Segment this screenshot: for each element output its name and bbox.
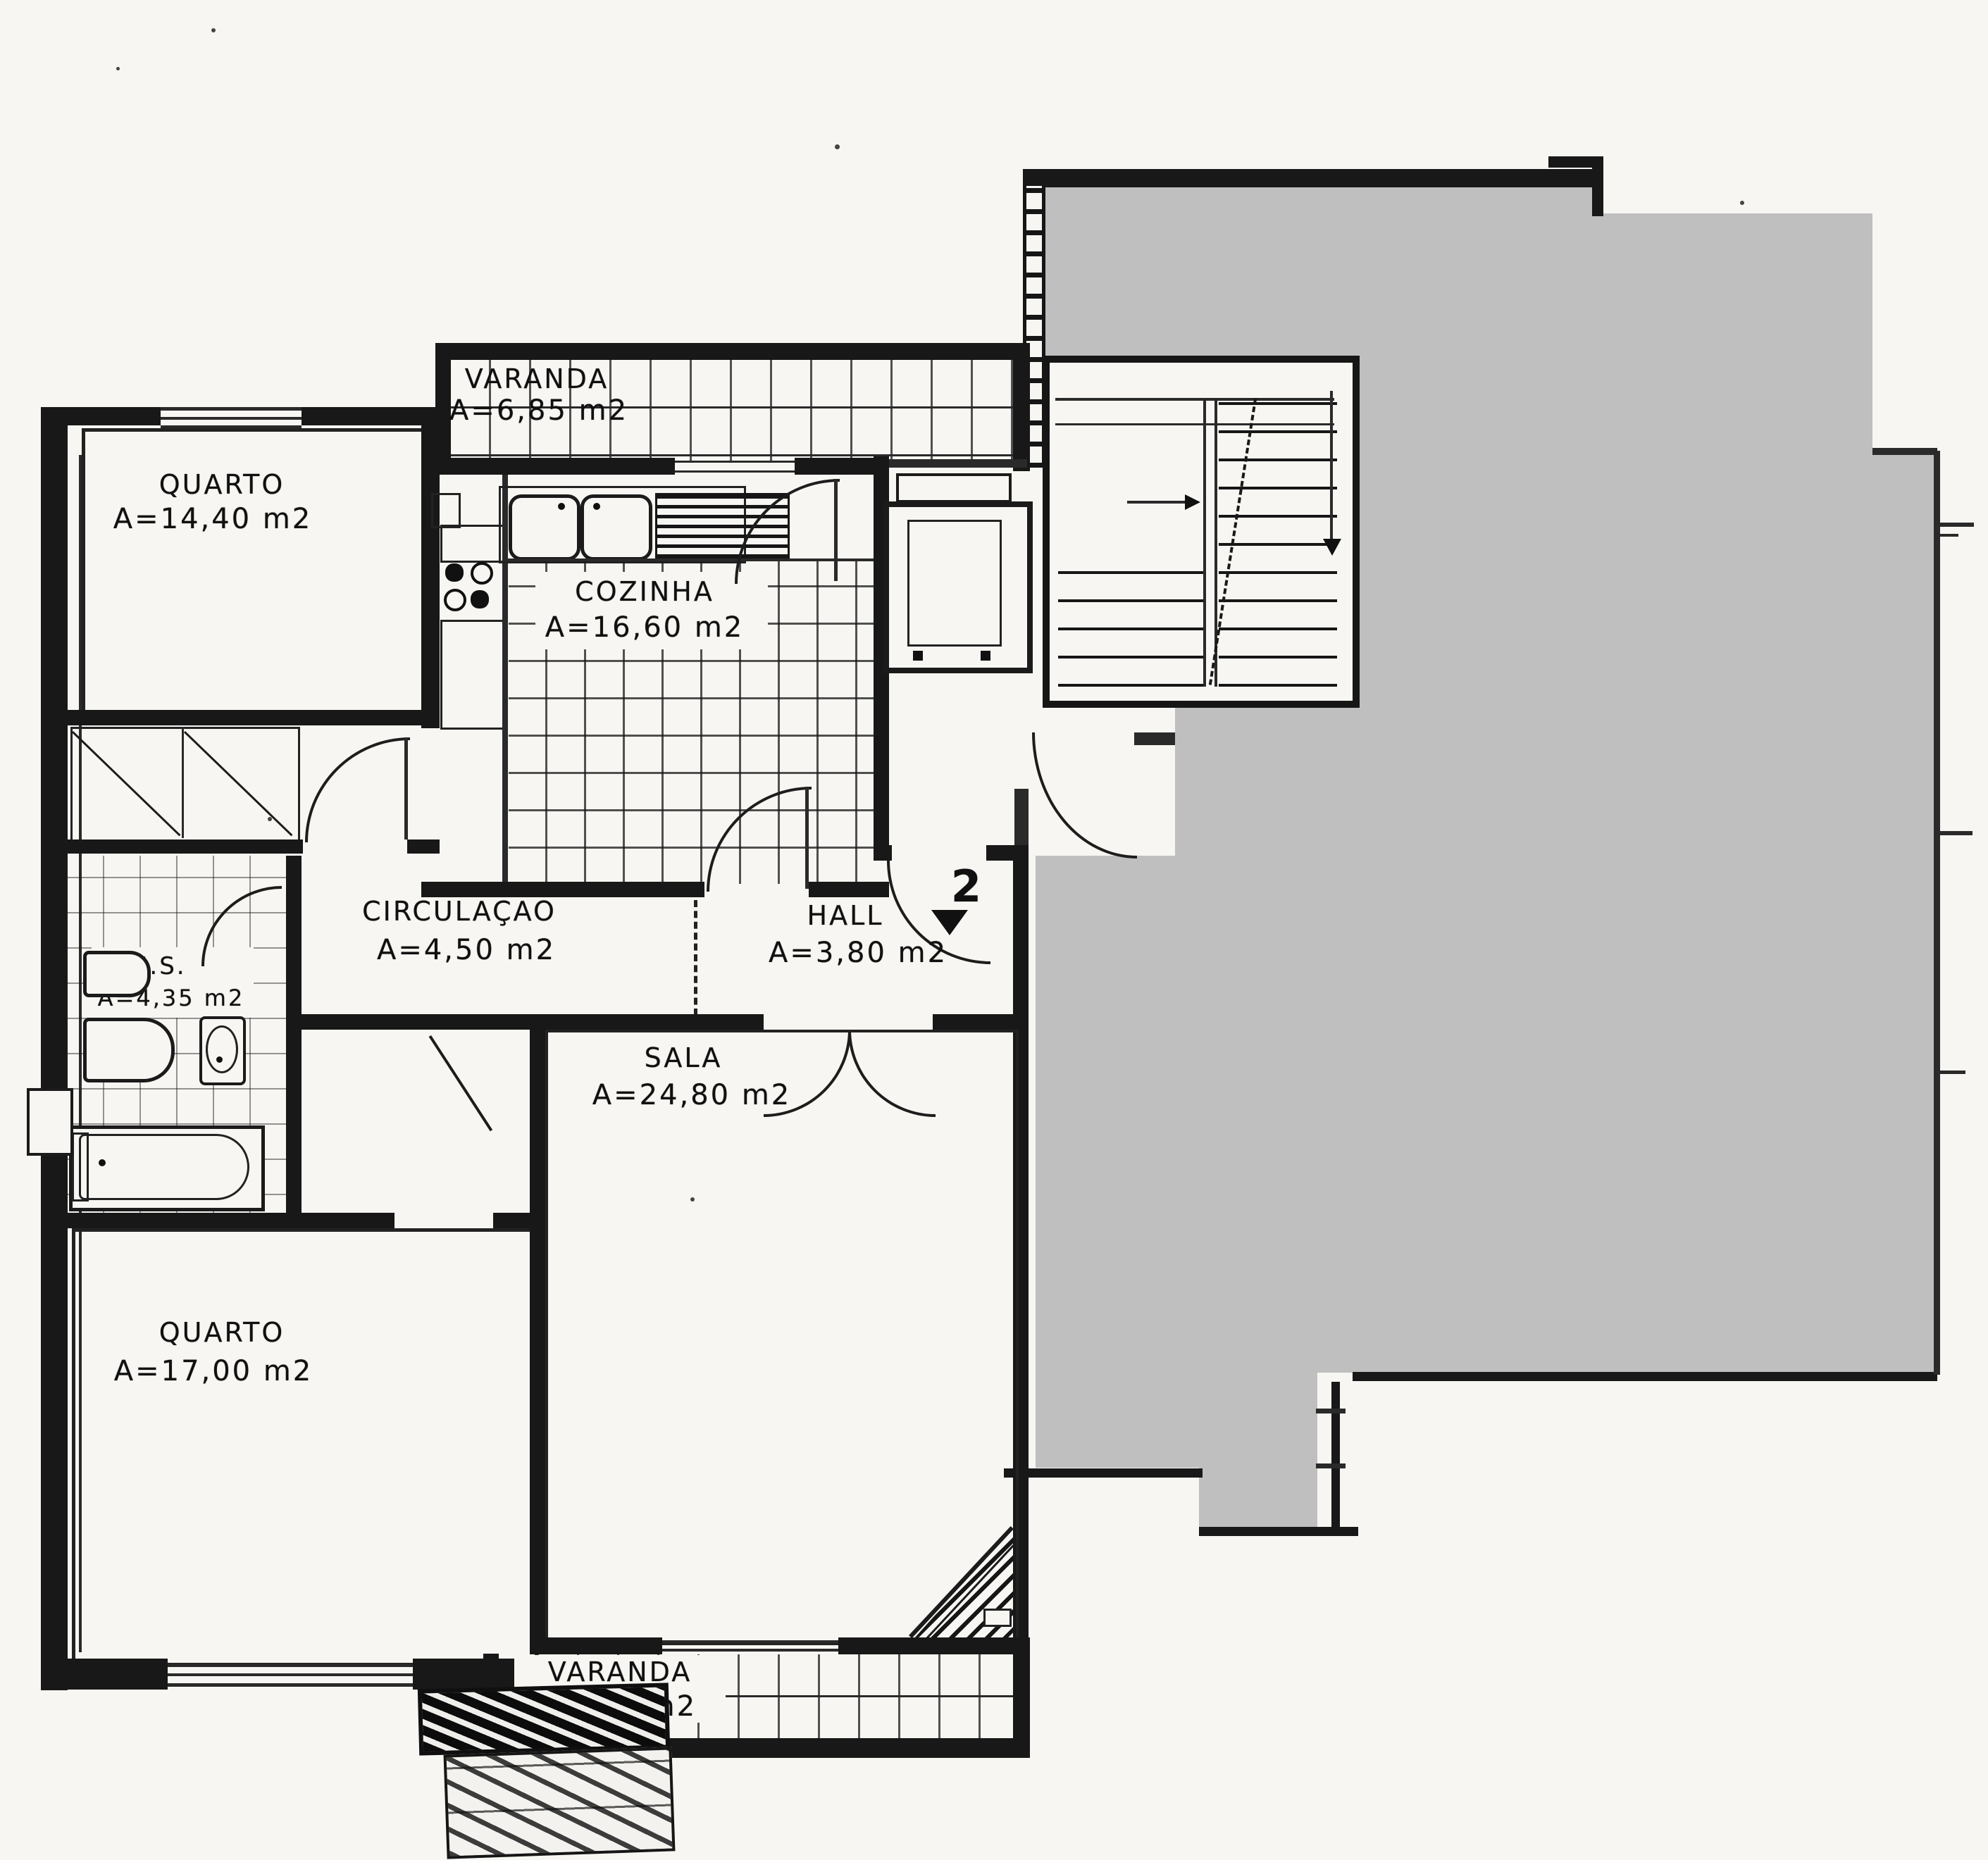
kitchen-counter — [431, 493, 461, 528]
wall — [435, 458, 675, 475]
window-mark — [1316, 1463, 1346, 1468]
wall — [68, 710, 440, 725]
kitchen-appliance — [440, 620, 507, 730]
room-name-varanda-top: VARANDA — [431, 363, 642, 394]
stair-flight — [1219, 399, 1337, 687]
paper-speck — [268, 817, 272, 821]
stair-direction-line — [1330, 391, 1333, 540]
sink-drain-dot — [593, 503, 600, 510]
entrance-marker-icon — [931, 910, 968, 935]
stair-arrow-icon — [1185, 494, 1200, 510]
door-arc-landing — [1032, 732, 1137, 859]
outer-wall-top — [41, 407, 161, 425]
wall — [874, 845, 892, 861]
hall-corridor-divider — [694, 900, 697, 1016]
elevator-door-gap — [923, 654, 983, 665]
window-mark — [1937, 831, 1973, 835]
wall — [1134, 732, 1175, 745]
outer-wall — [1872, 448, 1937, 455]
redaction-mask — [1038, 213, 1346, 358]
outer-wall — [1331, 1382, 1340, 1531]
room-outline-quarto-bottom — [72, 1228, 538, 1666]
closet-divider — [182, 727, 184, 838]
wall — [68, 840, 303, 854]
exterior-vent-box — [27, 1088, 73, 1156]
sink-drain-dot — [558, 503, 565, 510]
room-name-varanda-bottom: VARANDA — [514, 1656, 726, 1687]
paper-speck — [1740, 201, 1744, 205]
stair-flight — [1058, 547, 1205, 687]
room-name-hall: HALL — [775, 900, 916, 931]
redaction-mask — [1175, 694, 1935, 857]
window — [168, 1673, 413, 1676]
elevator-jamb — [913, 651, 923, 661]
room-area-cozinha: A=16,60 m2 — [511, 611, 778, 644]
room-name-cozinha: COZINHA — [542, 576, 747, 607]
balcony-wall — [1013, 1637, 1030, 1758]
closet — [70, 727, 300, 842]
window-mark — [1937, 534, 1958, 537]
balcony-wall — [435, 343, 1030, 360]
room-area-circulacao: A=4,50 m2 — [361, 934, 572, 966]
room-area-hall: A=3,80 m2 — [738, 937, 978, 969]
room-name-quarto-bottom: QUARTO — [134, 1317, 310, 1348]
window-mark — [1316, 1409, 1346, 1413]
wall — [421, 882, 704, 897]
stair-direction-line — [1127, 501, 1188, 504]
apartment-number: 2 — [943, 861, 992, 912]
wall — [407, 840, 440, 854]
floorplan-canvas: VARANDA A=6,85 m2 QUARTO A=14,40 m2 COZI… — [0, 0, 1988, 1860]
wall — [838, 1637, 1030, 1654]
outer-wall-bottom — [41, 1659, 168, 1690]
drain-dot — [99, 1159, 106, 1166]
outer-wall — [1353, 1372, 1937, 1381]
paper-speck — [116, 67, 120, 70]
toilet — [83, 951, 151, 997]
window — [161, 407, 302, 411]
wall — [889, 459, 1027, 468]
paper-speck — [835, 144, 840, 149]
outer-wall — [1934, 451, 1940, 1375]
room-area-quarto-bottom: A=17,00 m2 — [90, 1355, 337, 1387]
door-leaf — [805, 787, 809, 889]
door-leaf — [404, 737, 408, 840]
room-area-varanda-top: A=6,85 m2 — [412, 394, 666, 427]
burner-icon — [471, 562, 493, 585]
drain-dot — [216, 1056, 223, 1063]
window-mark — [1937, 1071, 1965, 1074]
balcony-wall — [1013, 343, 1030, 471]
ink-scribble — [418, 1683, 670, 1755]
window — [662, 1649, 838, 1652]
kitchen-appliance — [440, 525, 507, 563]
outer-wall-left — [41, 407, 68, 1690]
room-area-quarto-top: A=14,40 m2 — [93, 503, 333, 535]
outer-wall — [1592, 156, 1603, 216]
redaction-mask — [1038, 187, 1594, 216]
stair-arrow-icon — [1323, 539, 1341, 556]
stairwell — [1043, 356, 1360, 708]
redaction-mask — [1346, 451, 1935, 695]
door-sill — [675, 461, 795, 463]
wall-sala-left — [530, 1014, 545, 1654]
stair-divider — [1203, 399, 1206, 687]
window — [168, 1664, 413, 1667]
elevator-jamb — [981, 651, 990, 661]
redaction-mask — [1346, 213, 1872, 453]
fireplace-vent — [983, 1609, 1012, 1627]
room-outline-sala — [545, 1030, 1019, 1645]
door-leaf — [834, 479, 838, 581]
sink — [509, 494, 580, 561]
wall — [68, 1213, 302, 1228]
door-arc-quarto-top — [305, 737, 410, 842]
bathtub-inner — [79, 1134, 249, 1200]
burner-icon — [445, 563, 464, 582]
outer-wall — [1023, 169, 1599, 187]
planter-box — [444, 1747, 676, 1859]
window — [168, 1683, 413, 1687]
wall — [302, 1213, 395, 1228]
window — [662, 1640, 838, 1643]
room-area-sala: A=24,80 m2 — [558, 1079, 826, 1111]
wall — [530, 1637, 662, 1654]
door-sill — [675, 470, 795, 473]
sink — [580, 494, 652, 561]
redaction-mask — [1036, 1371, 1317, 1468]
paper-speck — [211, 28, 216, 32]
redaction-mask — [1036, 856, 1935, 1373]
redaction-mask — [1199, 1466, 1317, 1528]
washbasin-bowl — [206, 1025, 238, 1073]
bidet — [83, 1018, 175, 1082]
room-name-sala: SALA — [613, 1042, 754, 1073]
wall — [795, 458, 874, 475]
wall-bathroom-right — [286, 856, 302, 1230]
window — [161, 417, 302, 420]
burner-icon — [471, 590, 489, 608]
bathtub-faucet-box — [72, 1132, 89, 1201]
wall — [809, 882, 889, 897]
room-name-quarto-top: QUARTO — [134, 469, 310, 500]
paper-speck — [690, 1197, 695, 1201]
burner-icon — [444, 589, 466, 611]
balcony-floor-line — [451, 454, 1013, 456]
room-name-circulacao: CIRCULAÇAO — [347, 896, 572, 927]
door-leaf-quarto-bottom — [429, 1035, 492, 1131]
duct-box — [896, 473, 1012, 503]
outer-wall — [1004, 1468, 1203, 1478]
window-mark — [1937, 523, 1974, 527]
wall — [986, 845, 1029, 861]
elevator-car — [907, 520, 1002, 647]
